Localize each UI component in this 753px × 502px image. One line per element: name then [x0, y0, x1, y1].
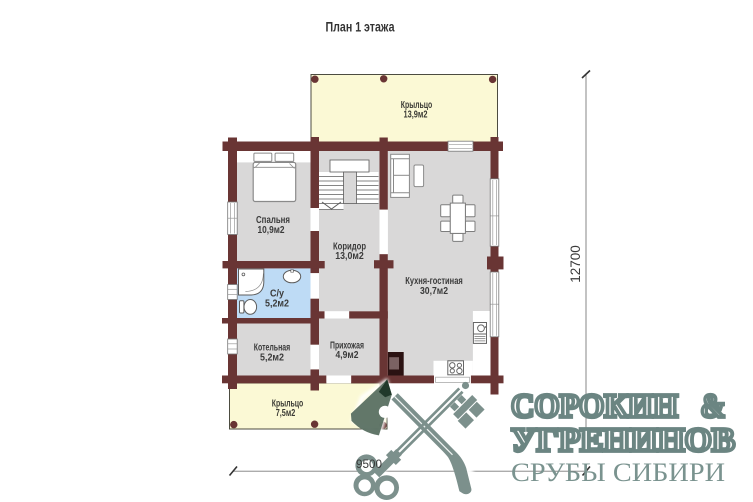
svg-text:УГРЕНИНОВ: УГРЕНИНОВ — [511, 422, 735, 459]
svg-text:13,0м2: 13,0м2 — [335, 250, 364, 262]
svg-text:4,9м2: 4,9м2 — [336, 349, 359, 361]
svg-text:30,7м2: 30,7м2 — [420, 285, 448, 297]
svg-text:12700: 12700 — [568, 245, 583, 283]
svg-text:СОРОКИН: СОРОКИН — [511, 388, 678, 425]
svg-text:9500: 9500 — [356, 457, 382, 471]
svg-text:5,2м2: 5,2м2 — [265, 298, 289, 310]
svg-text:&: & — [701, 388, 726, 425]
svg-text:СРУБЫ СИБИРИ: СРУБЫ СИБИРИ — [511, 457, 725, 487]
svg-text:10,9м2: 10,9м2 — [258, 224, 285, 236]
svg-text:13,9м2: 13,9м2 — [404, 108, 428, 120]
svg-text:5,2м2: 5,2м2 — [260, 352, 284, 364]
svg-text:7,5м2: 7,5м2 — [276, 407, 296, 419]
svg-text:План 1 этажа: План 1 этажа — [326, 20, 395, 35]
